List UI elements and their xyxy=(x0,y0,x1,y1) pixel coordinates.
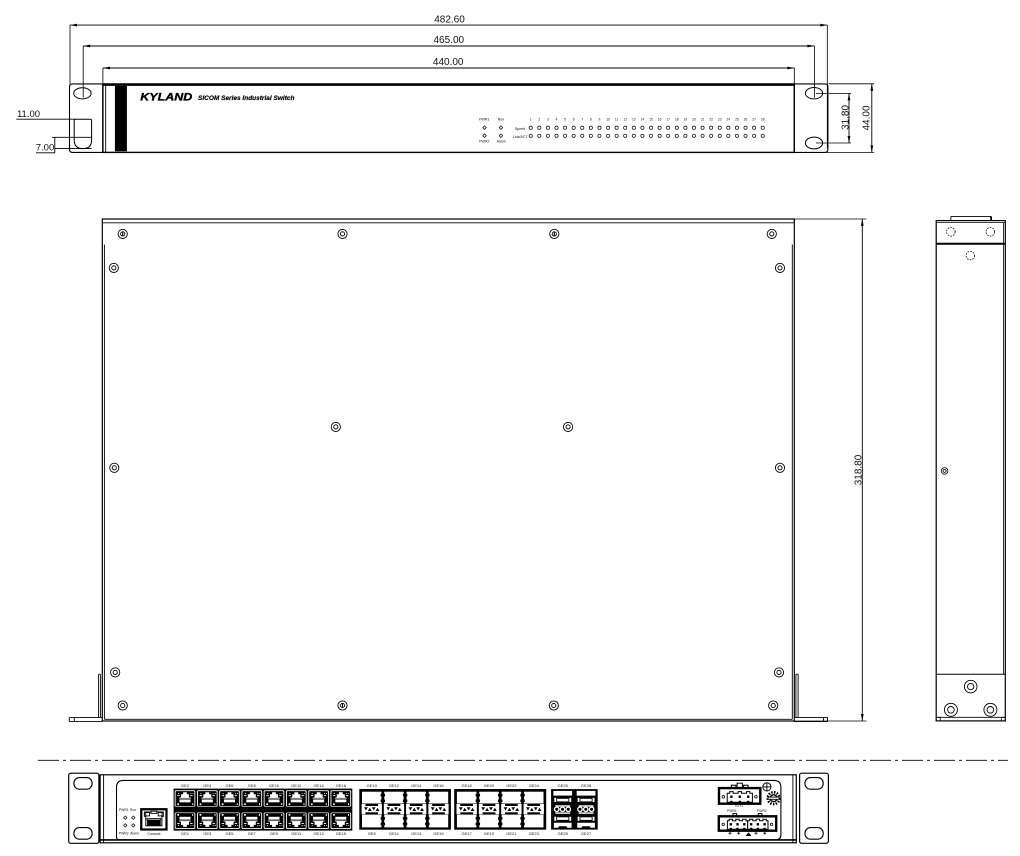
svg-text:10: 10 xyxy=(606,117,610,121)
svg-text:PWR1: PWR1 xyxy=(479,117,489,121)
svg-text:20: 20 xyxy=(692,117,696,121)
svg-text:SICOM Series Industrial Switch: SICOM Series Industrial Switch xyxy=(198,95,294,102)
svg-text:2: 2 xyxy=(538,117,540,121)
svg-text:11.00: 11.00 xyxy=(17,109,40,120)
svg-text:GE9: GE9 xyxy=(368,831,377,836)
svg-text:Run: Run xyxy=(498,117,505,121)
svg-text:GE9: GE9 xyxy=(270,831,279,836)
svg-text:18: 18 xyxy=(675,117,679,121)
svg-text:GE4: GE4 xyxy=(203,783,212,788)
svg-text:GE25: GE25 xyxy=(558,831,569,836)
svg-text:PWR1: PWR1 xyxy=(727,809,737,813)
svg-text:GE14: GE14 xyxy=(313,783,324,788)
svg-text:GE15: GE15 xyxy=(433,831,444,836)
svg-text:17: 17 xyxy=(666,117,670,121)
svg-text:16: 16 xyxy=(658,117,662,121)
svg-text:GE14: GE14 xyxy=(411,783,422,788)
svg-text:3: 3 xyxy=(547,117,549,121)
svg-text:44.00: 44.00 xyxy=(861,105,872,130)
svg-text:GE16: GE16 xyxy=(336,783,347,788)
svg-text:GE13: GE13 xyxy=(411,831,422,836)
svg-text:5: 5 xyxy=(564,117,566,121)
svg-text:22: 22 xyxy=(709,117,713,121)
svg-text:7: 7 xyxy=(581,117,583,121)
svg-text:GE20: GE20 xyxy=(484,783,495,788)
svg-text:28: 28 xyxy=(761,117,765,121)
svg-text:GE21: GE21 xyxy=(506,831,517,836)
svg-text:GE26: GE26 xyxy=(558,783,569,788)
svg-text:1: 1 xyxy=(530,117,532,121)
svg-text:15: 15 xyxy=(649,117,653,121)
svg-text:GE11: GE11 xyxy=(291,831,302,836)
svg-text:Alarm: Alarm xyxy=(130,832,139,836)
svg-text:PWR2: PWR2 xyxy=(479,139,489,143)
svg-text:PWR2: PWR2 xyxy=(757,809,767,813)
svg-text:24: 24 xyxy=(727,117,731,121)
svg-text:4: 4 xyxy=(556,117,558,121)
svg-text:13: 13 xyxy=(632,117,636,121)
svg-text:GE19: GE19 xyxy=(484,831,495,836)
svg-text:GE28: GE28 xyxy=(581,783,592,788)
svg-text:Alarm: Alarm xyxy=(497,139,506,143)
svg-text:GE17: GE17 xyxy=(462,831,473,836)
svg-text:GE11: GE11 xyxy=(389,831,400,836)
svg-text:Run: Run xyxy=(130,808,136,812)
svg-text:Console: Console xyxy=(147,832,160,836)
svg-text:GE3: GE3 xyxy=(203,831,212,836)
svg-text:14: 14 xyxy=(641,117,645,121)
svg-text:GE5: GE5 xyxy=(226,831,235,836)
svg-text:7.00: 7.00 xyxy=(36,143,55,154)
svg-text:GE12: GE12 xyxy=(291,783,302,788)
svg-text:GE13: GE13 xyxy=(313,831,324,836)
svg-text:23: 23 xyxy=(718,117,722,121)
svg-text:482.60: 482.60 xyxy=(434,14,465,25)
svg-text:GE23: GE23 xyxy=(529,831,540,836)
svg-text:19: 19 xyxy=(684,117,688,121)
svg-text:25: 25 xyxy=(735,117,739,121)
svg-text:GE6: GE6 xyxy=(226,783,235,788)
svg-text:318.80: 318.80 xyxy=(853,454,864,485)
svg-text:PWR2: PWR2 xyxy=(119,832,129,836)
svg-text:GE1: GE1 xyxy=(181,831,190,836)
svg-text:GE27: GE27 xyxy=(581,831,592,836)
svg-text:RLY1: RLY1 xyxy=(735,804,743,808)
svg-text:GE24: GE24 xyxy=(529,783,540,788)
svg-text:GE10: GE10 xyxy=(367,783,378,788)
svg-text:31.80: 31.80 xyxy=(840,105,851,130)
svg-text:GE8: GE8 xyxy=(248,783,257,788)
svg-text:GE10: GE10 xyxy=(269,783,280,788)
svg-text:PWR1: PWR1 xyxy=(119,808,129,812)
svg-text:12: 12 xyxy=(623,117,627,121)
svg-text:GE7: GE7 xyxy=(248,831,257,836)
svg-text:Link/ACT: Link/ACT xyxy=(513,135,529,139)
svg-text:440.00: 440.00 xyxy=(433,57,464,68)
svg-text:11: 11 xyxy=(615,117,619,121)
svg-text:GE12: GE12 xyxy=(389,783,400,788)
svg-text:21: 21 xyxy=(701,117,705,121)
svg-text:9: 9 xyxy=(599,117,601,121)
svg-text:6: 6 xyxy=(573,117,575,121)
svg-text:465.00: 465.00 xyxy=(434,35,465,46)
svg-text:KYLAND: KYLAND xyxy=(140,91,192,103)
svg-text:26: 26 xyxy=(744,117,748,121)
svg-text:GE2: GE2 xyxy=(181,783,190,788)
svg-text:GE22: GE22 xyxy=(506,783,517,788)
svg-text:Speed: Speed xyxy=(515,127,525,131)
svg-text:27: 27 xyxy=(752,117,756,121)
svg-text:8: 8 xyxy=(590,117,592,121)
svg-text:GE15: GE15 xyxy=(336,831,347,836)
svg-text:GE18: GE18 xyxy=(462,783,473,788)
svg-text:GE16: GE16 xyxy=(433,783,444,788)
